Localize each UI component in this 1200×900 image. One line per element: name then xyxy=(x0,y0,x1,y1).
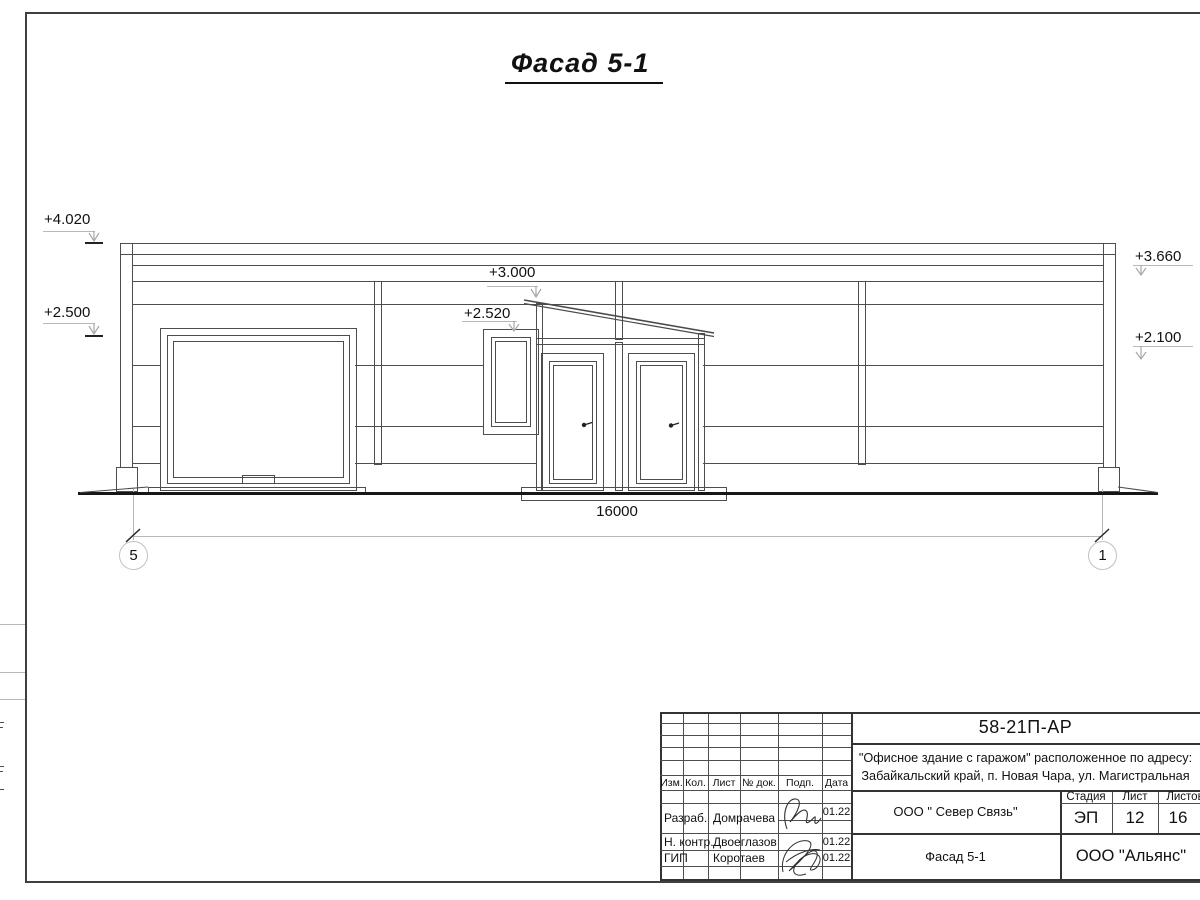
titleblock-header-sign: Подп. xyxy=(778,775,822,790)
sheet-header: Лист xyxy=(1112,790,1158,803)
line xyxy=(148,487,365,488)
ground-line xyxy=(78,492,1158,495)
line xyxy=(1133,265,1193,266)
drawing-title: Фасад 5-1 xyxy=(505,48,663,84)
elevation-mark-left-top: +4.020 xyxy=(44,211,90,228)
elevation-mark-right-mid: +2.100 xyxy=(1135,329,1181,346)
line xyxy=(374,281,382,465)
line xyxy=(1115,243,1116,467)
line xyxy=(132,243,133,467)
project-line2: Забайкальский край, п. Новая Чара, ул. М… xyxy=(861,767,1189,785)
line xyxy=(660,735,851,736)
line xyxy=(0,624,25,625)
titleblock-header-doc: № док. xyxy=(740,775,778,790)
titleblock-header-izm: Изм. xyxy=(660,775,683,790)
line xyxy=(536,338,705,345)
document-number: 58-21П-АР xyxy=(851,712,1200,743)
line xyxy=(615,281,623,340)
line xyxy=(0,672,25,673)
line xyxy=(120,243,121,467)
line xyxy=(858,281,866,465)
line xyxy=(0,727,3,728)
line xyxy=(1133,346,1193,347)
line xyxy=(0,699,25,700)
date-developer: 01.22 xyxy=(822,803,851,820)
line xyxy=(43,323,95,324)
line xyxy=(43,231,95,232)
titleblock-header-kol: Кол. xyxy=(683,775,708,790)
line xyxy=(778,820,851,821)
sheets-header: Листов xyxy=(1158,790,1200,803)
line xyxy=(703,426,1103,427)
line xyxy=(615,342,623,491)
elevation-mark-canopy: +3.000 xyxy=(489,264,535,281)
line xyxy=(1103,243,1104,467)
elevation-mark-left-mid: +2.500 xyxy=(44,304,90,321)
role-chief: ГИП xyxy=(661,850,711,866)
line xyxy=(660,866,851,867)
line xyxy=(703,365,1103,366)
elevation-mark-right-top: +3.660 xyxy=(1135,248,1181,265)
line xyxy=(355,463,536,464)
line xyxy=(0,722,4,723)
titleblock-header-date: Дата xyxy=(822,775,851,790)
role-norm-control: Н. контр. xyxy=(661,833,714,850)
titleblock-header-list: Лист xyxy=(708,775,740,790)
line xyxy=(703,463,1103,464)
line xyxy=(660,760,851,761)
company-name: ООО " Север Связь" xyxy=(851,790,1060,833)
line xyxy=(0,771,3,772)
line xyxy=(640,365,683,480)
line xyxy=(660,879,1200,881)
line xyxy=(553,365,593,480)
project-line1: "Офисное здание с гаражом" расположенное… xyxy=(859,749,1192,767)
date-norm-control: 01.22 xyxy=(822,833,851,850)
line xyxy=(495,341,527,423)
line xyxy=(133,489,134,540)
sheets-total: 16 xyxy=(1152,803,1200,833)
line xyxy=(487,286,538,287)
name-developer: Домрачева xyxy=(710,803,781,833)
axis-marker-1: 1 xyxy=(1088,541,1117,570)
stage-header: Стадия xyxy=(1060,790,1112,803)
date-chief: 01.22 xyxy=(822,850,851,866)
line xyxy=(0,766,4,767)
line xyxy=(242,475,275,484)
name-norm-control: Двоеглазов xyxy=(710,833,781,850)
line xyxy=(120,243,1116,244)
line xyxy=(660,723,851,724)
line xyxy=(133,365,160,366)
drawing-sheet: Фасад 5-1 +4.020 +2.500 +3.000 +2.520 +3… xyxy=(0,0,1200,900)
name-chief: Коротаев xyxy=(710,850,781,866)
line xyxy=(120,254,1116,255)
axis-marker-5: 5 xyxy=(119,541,148,570)
line xyxy=(660,747,851,748)
line xyxy=(0,789,4,790)
line xyxy=(133,536,1102,537)
line xyxy=(133,463,160,464)
elevation-mark-window: +2.520 xyxy=(464,305,510,322)
line xyxy=(173,341,344,478)
contractor-name: ООО "Альянс" xyxy=(1060,833,1200,879)
role-developer: Разраб. xyxy=(661,803,711,833)
line xyxy=(660,790,851,791)
line xyxy=(133,265,1103,266)
line xyxy=(698,333,705,491)
line xyxy=(1102,489,1103,540)
line xyxy=(116,467,138,492)
line xyxy=(133,426,160,427)
stage-value: ЭП xyxy=(1060,803,1112,833)
project-description: "Офисное здание с гаражом" расположенное… xyxy=(851,743,1200,790)
sheet-name: Фасад 5-1 xyxy=(851,833,1060,879)
dimension-total: 16000 xyxy=(557,503,677,520)
